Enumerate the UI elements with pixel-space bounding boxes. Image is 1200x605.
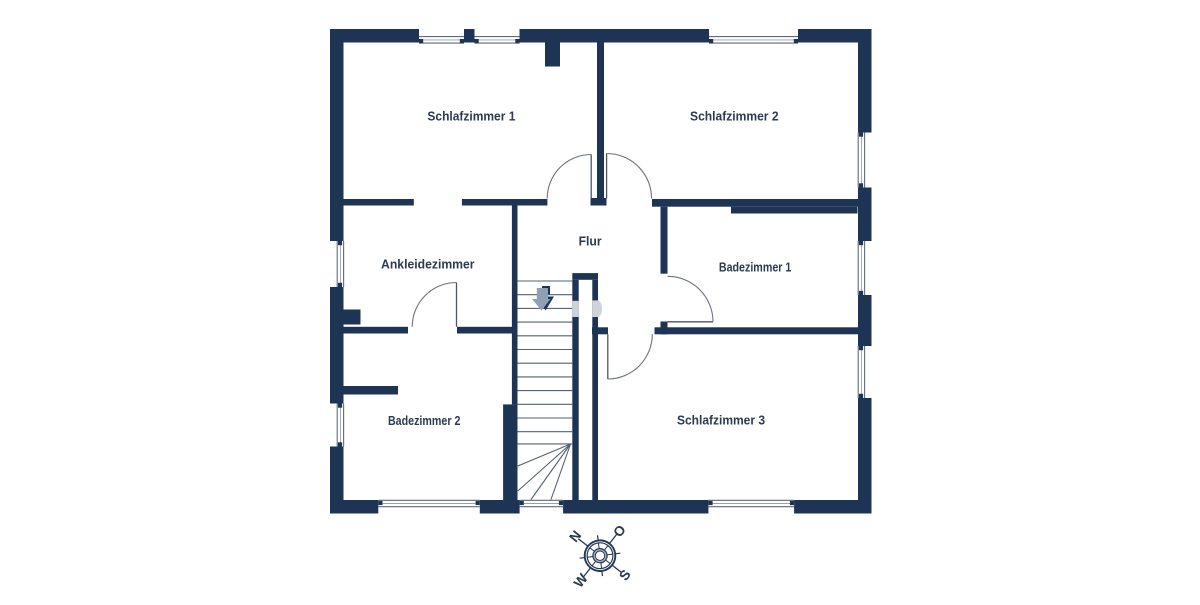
svg-text:Schlafzimmer 1: Schlafzimmer 1 <box>427 109 515 124</box>
svg-text:Badezimmer 1: Badezimmer 1 <box>719 259 792 274</box>
svg-text:Schlafzimmer 3: Schlafzimmer 3 <box>677 413 765 428</box>
svg-text:Flur: Flur <box>579 233 602 248</box>
svg-text:Schlafzimmer 2: Schlafzimmer 2 <box>690 108 779 123</box>
svg-text:Badezimmer 2: Badezimmer 2 <box>388 413 461 428</box>
svg-text:Ankleidezimmer: Ankleidezimmer <box>381 257 475 272</box>
